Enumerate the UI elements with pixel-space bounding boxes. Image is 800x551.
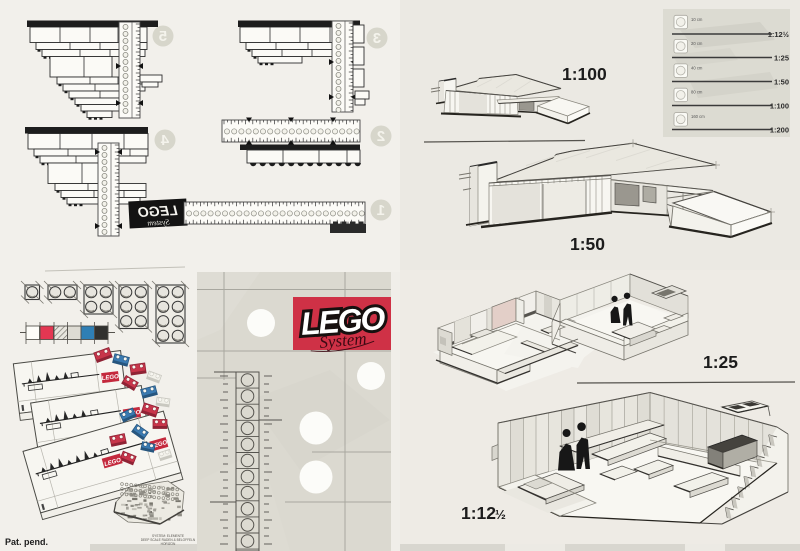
svg-text:3: 3 [373,30,381,47]
svg-text:1:12½: 1:12½ [768,30,789,39]
svg-text:40 cm: 40 cm [691,65,703,70]
svg-text:80 cm: 80 cm [691,90,703,95]
svg-text:20 cm: 20 cm [691,41,703,46]
svg-text:10 cm: 10 cm [691,17,703,22]
svg-text:1:200: 1:200 [770,126,789,135]
svg-text:Pat. pend.: Pat. pend. [5,537,48,547]
svg-text:5: 5 [159,28,167,45]
svg-text:1:100: 1:100 [770,102,789,111]
svg-text:HORIZON: HORIZON [161,542,176,546]
svg-text:160 cm: 160 cm [691,114,705,119]
svg-text:2: 2 [377,128,385,145]
svg-text:1:50: 1:50 [570,234,605,254]
svg-text:4: 4 [160,132,169,149]
svg-text:1:25: 1:25 [703,352,738,372]
svg-text:1:25: 1:25 [774,54,789,63]
svg-text:1:50: 1:50 [774,78,789,87]
svg-text:1: 1 [377,202,385,219]
svg-text:System: System [147,217,170,227]
svg-text:½: ½ [495,507,506,522]
svg-text:1:100: 1:100 [562,64,607,84]
svg-text:1:12: 1:12 [461,503,496,523]
